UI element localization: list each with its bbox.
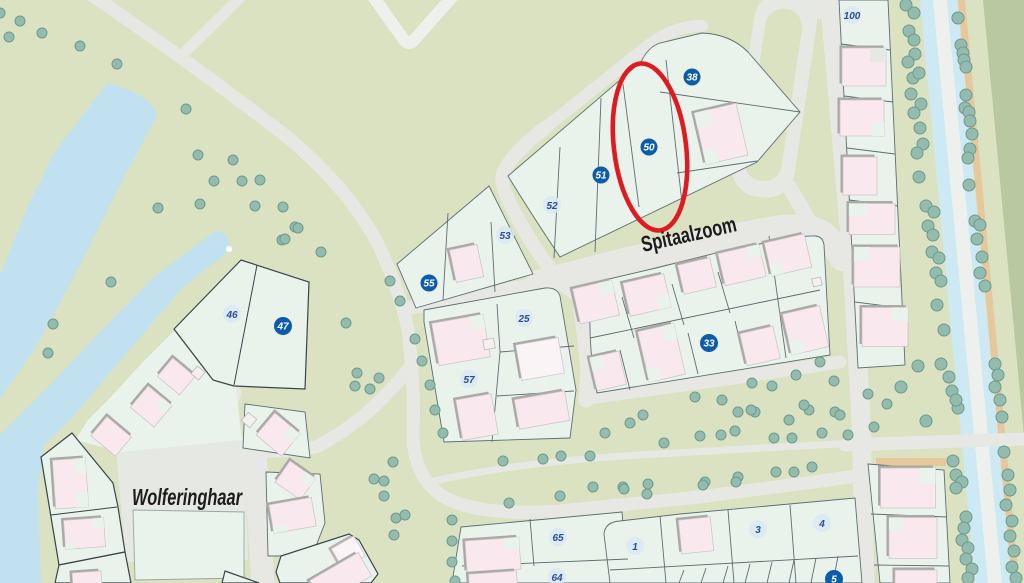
svg-text:1: 1	[632, 542, 638, 553]
svg-text:4: 4	[818, 519, 825, 530]
svg-text:57: 57	[463, 375, 475, 386]
svg-text:65: 65	[552, 533, 564, 544]
svg-text:33: 33	[703, 339, 715, 350]
svg-text:55: 55	[423, 279, 435, 290]
svg-text:25: 25	[517, 314, 530, 325]
svg-text:53: 53	[499, 231, 511, 242]
svg-text:Wolferinghaar: Wolferinghaar	[132, 484, 243, 510]
svg-text:51: 51	[595, 171, 607, 182]
svg-text:47: 47	[276, 322, 289, 333]
svg-text:38: 38	[686, 73, 698, 84]
svg-text:50: 50	[643, 143, 655, 154]
svg-text:3: 3	[755, 525, 761, 536]
svg-text:64: 64	[551, 573, 563, 583]
svg-text:100: 100	[844, 11, 861, 22]
svg-text:46: 46	[225, 310, 238, 321]
svg-text:5: 5	[831, 575, 837, 583]
svg-text:52: 52	[546, 201, 558, 212]
